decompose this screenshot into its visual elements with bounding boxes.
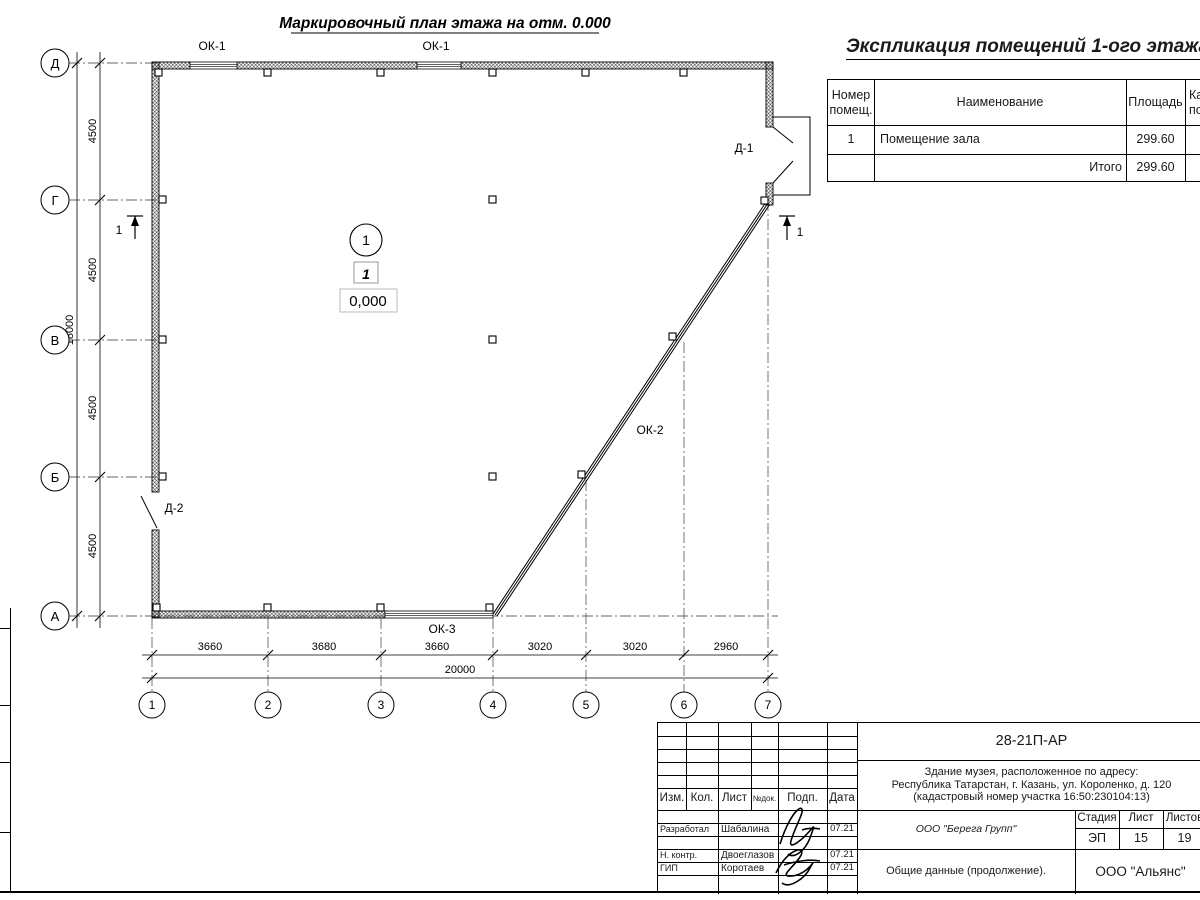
total-label: Итого bbox=[874, 154, 1126, 181]
svg-text:4500: 4500 bbox=[87, 119, 99, 143]
doc-number: 28-21П-АР bbox=[857, 723, 1200, 760]
label-d2: Д-2 bbox=[165, 501, 184, 515]
role-gip: ГИП bbox=[660, 862, 716, 875]
sheet-frame-bottom bbox=[0, 891, 1200, 893]
sheet-frame-left bbox=[10, 608, 11, 893]
name-ncontrol: Двоеглазов bbox=[721, 849, 776, 862]
door-d2-leaf bbox=[141, 496, 157, 528]
col-izm: Изм. bbox=[658, 788, 686, 810]
svg-text:3680: 3680 bbox=[312, 641, 336, 653]
section-mark-right bbox=[779, 216, 795, 240]
svg-text:3: 3 bbox=[378, 698, 385, 712]
svg-text:Г: Г bbox=[51, 193, 58, 208]
svg-text:6: 6 bbox=[681, 698, 688, 712]
row-name: Помещение зала bbox=[874, 125, 1126, 154]
row-area: 299.60 bbox=[1126, 125, 1185, 154]
svg-text:3660: 3660 bbox=[198, 641, 222, 653]
project-address: Здание музея, расположенное по адресу: Р… bbox=[857, 760, 1200, 810]
drawing-sheet: { "plan": { "title": "Маркировочный план… bbox=[0, 0, 1200, 900]
svg-text:А: А bbox=[51, 609, 60, 624]
stage-label: Стадия bbox=[1075, 810, 1119, 828]
svg-text:4500: 4500 bbox=[87, 258, 99, 282]
col-data: Дата bbox=[827, 788, 857, 810]
wall-bottom bbox=[152, 611, 385, 618]
room-number: 1 bbox=[362, 232, 370, 248]
dimension-values-bottom: 3660 3680 3660 3020 3020 2960 20000 bbox=[198, 641, 738, 676]
floor-plan-svg: Маркировочный план этажа на отм. 0.000 bbox=[0, 0, 840, 730]
window-ok2-wall bbox=[493, 202, 770, 616]
elevation-value: 0,000 bbox=[349, 293, 387, 310]
design-company: ООО "Берега Групп" bbox=[857, 810, 1075, 849]
name-gip: Коротаев bbox=[721, 862, 776, 875]
window-ok3 bbox=[385, 611, 493, 618]
explication-title: Экспликация помещений 1-ого этажа bbox=[846, 36, 1200, 60]
axis-lines bbox=[69, 63, 778, 692]
svg-text:4500: 4500 bbox=[87, 396, 99, 420]
svg-text:Д: Д bbox=[51, 56, 60, 71]
sheet-label: Лист bbox=[1119, 810, 1163, 828]
col-header-area: Площадь bbox=[1126, 80, 1185, 125]
label-ok1-right: ОК-1 bbox=[423, 39, 450, 53]
opening-labels: ОК-1 ОК-1 ОК-2 ОК-3 Д-1 Д-2 bbox=[165, 39, 754, 636]
label-d1: Д-1 bbox=[735, 141, 754, 155]
section-mark-right-label: 1 bbox=[797, 225, 804, 239]
name-developer: Шабалина bbox=[721, 823, 776, 836]
svg-text:2: 2 bbox=[265, 698, 272, 712]
title-block: Изм. Кол. Лист №док. Подп. Дата Разработ… bbox=[657, 722, 1200, 893]
section-mark-left bbox=[127, 216, 143, 239]
row-number: 1 bbox=[828, 125, 874, 154]
axis-bubbles-bottom: 1 2 3 4 5 6 7 bbox=[139, 692, 781, 718]
col-podp: Подп. bbox=[778, 788, 827, 810]
label-ok2: ОК-2 bbox=[637, 423, 664, 437]
svg-text:4: 4 bbox=[490, 698, 497, 712]
windows-group bbox=[190, 62, 493, 618]
axis-bubbles-left: Д Г В Б А bbox=[41, 49, 69, 630]
svg-text:2960: 2960 bbox=[714, 641, 738, 653]
svg-text:3660: 3660 bbox=[425, 641, 449, 653]
dimension-total-bottom: 20000 bbox=[445, 664, 476, 676]
window-ok1-right bbox=[417, 62, 461, 69]
svg-text:Б: Б bbox=[51, 470, 60, 485]
zone-number: 1 bbox=[362, 266, 370, 282]
total-area: 299.60 bbox=[1126, 154, 1185, 181]
plan-title: Маркировочный план этажа на отм. 0.000 bbox=[279, 15, 611, 32]
wall-left-upper bbox=[152, 62, 159, 492]
role-ncontrol: Н. контр. bbox=[660, 849, 716, 862]
wall-top-seg2 bbox=[237, 62, 417, 69]
svg-text:1: 1 bbox=[149, 698, 156, 712]
svg-text:В: В bbox=[51, 333, 60, 348]
stage-value: ЭП bbox=[1075, 828, 1119, 849]
label-ok1-left: ОК-1 bbox=[199, 39, 226, 53]
sheets-label: Листов bbox=[1163, 810, 1200, 828]
sheet-value: 15 bbox=[1119, 828, 1163, 849]
wall-right-top bbox=[766, 62, 773, 127]
sheet-frame-tick bbox=[0, 832, 10, 833]
role-developer: Разработал bbox=[660, 823, 716, 836]
col-ndok: №док. bbox=[751, 788, 778, 810]
svg-text:3020: 3020 bbox=[623, 641, 647, 653]
explication-table: Номер помещ. Наименование Площадь Ка по … bbox=[827, 79, 1200, 182]
label-ok3: ОК-3 bbox=[429, 622, 456, 636]
date-gip: 07.21 bbox=[827, 862, 857, 875]
svg-text:3020: 3020 bbox=[528, 641, 552, 653]
vestibule-outline bbox=[773, 117, 810, 195]
svg-text:5: 5 bbox=[583, 698, 590, 712]
sheet-frame-tick bbox=[0, 628, 10, 629]
col-header-category: Ка по bbox=[1185, 80, 1200, 125]
svg-text:4500: 4500 bbox=[87, 534, 99, 558]
customer-org: ООО "Альянс" bbox=[1075, 849, 1200, 894]
column-markers bbox=[153, 69, 768, 611]
section-mark-left-label: 1 bbox=[116, 223, 123, 237]
col-list: Лист bbox=[718, 788, 751, 810]
sheets-value: 19 bbox=[1163, 828, 1200, 849]
sheet-frame-tick bbox=[0, 705, 10, 706]
col-kol: Кол. bbox=[686, 788, 718, 810]
door-d1-leaves bbox=[773, 127, 793, 183]
col-header-name: Наименование bbox=[874, 80, 1126, 125]
window-ok1-left bbox=[190, 62, 237, 69]
date-developer: 07.21 bbox=[827, 823, 857, 836]
svg-text:7: 7 bbox=[765, 698, 772, 712]
date-ncontrol: 07.21 bbox=[827, 849, 857, 862]
sheet-frame-tick bbox=[0, 762, 10, 763]
doc-title: Общие данные (продолжение). bbox=[857, 849, 1075, 894]
wall-top-seg3 bbox=[461, 62, 773, 69]
col-header-number: Номер помещ. bbox=[828, 80, 874, 125]
